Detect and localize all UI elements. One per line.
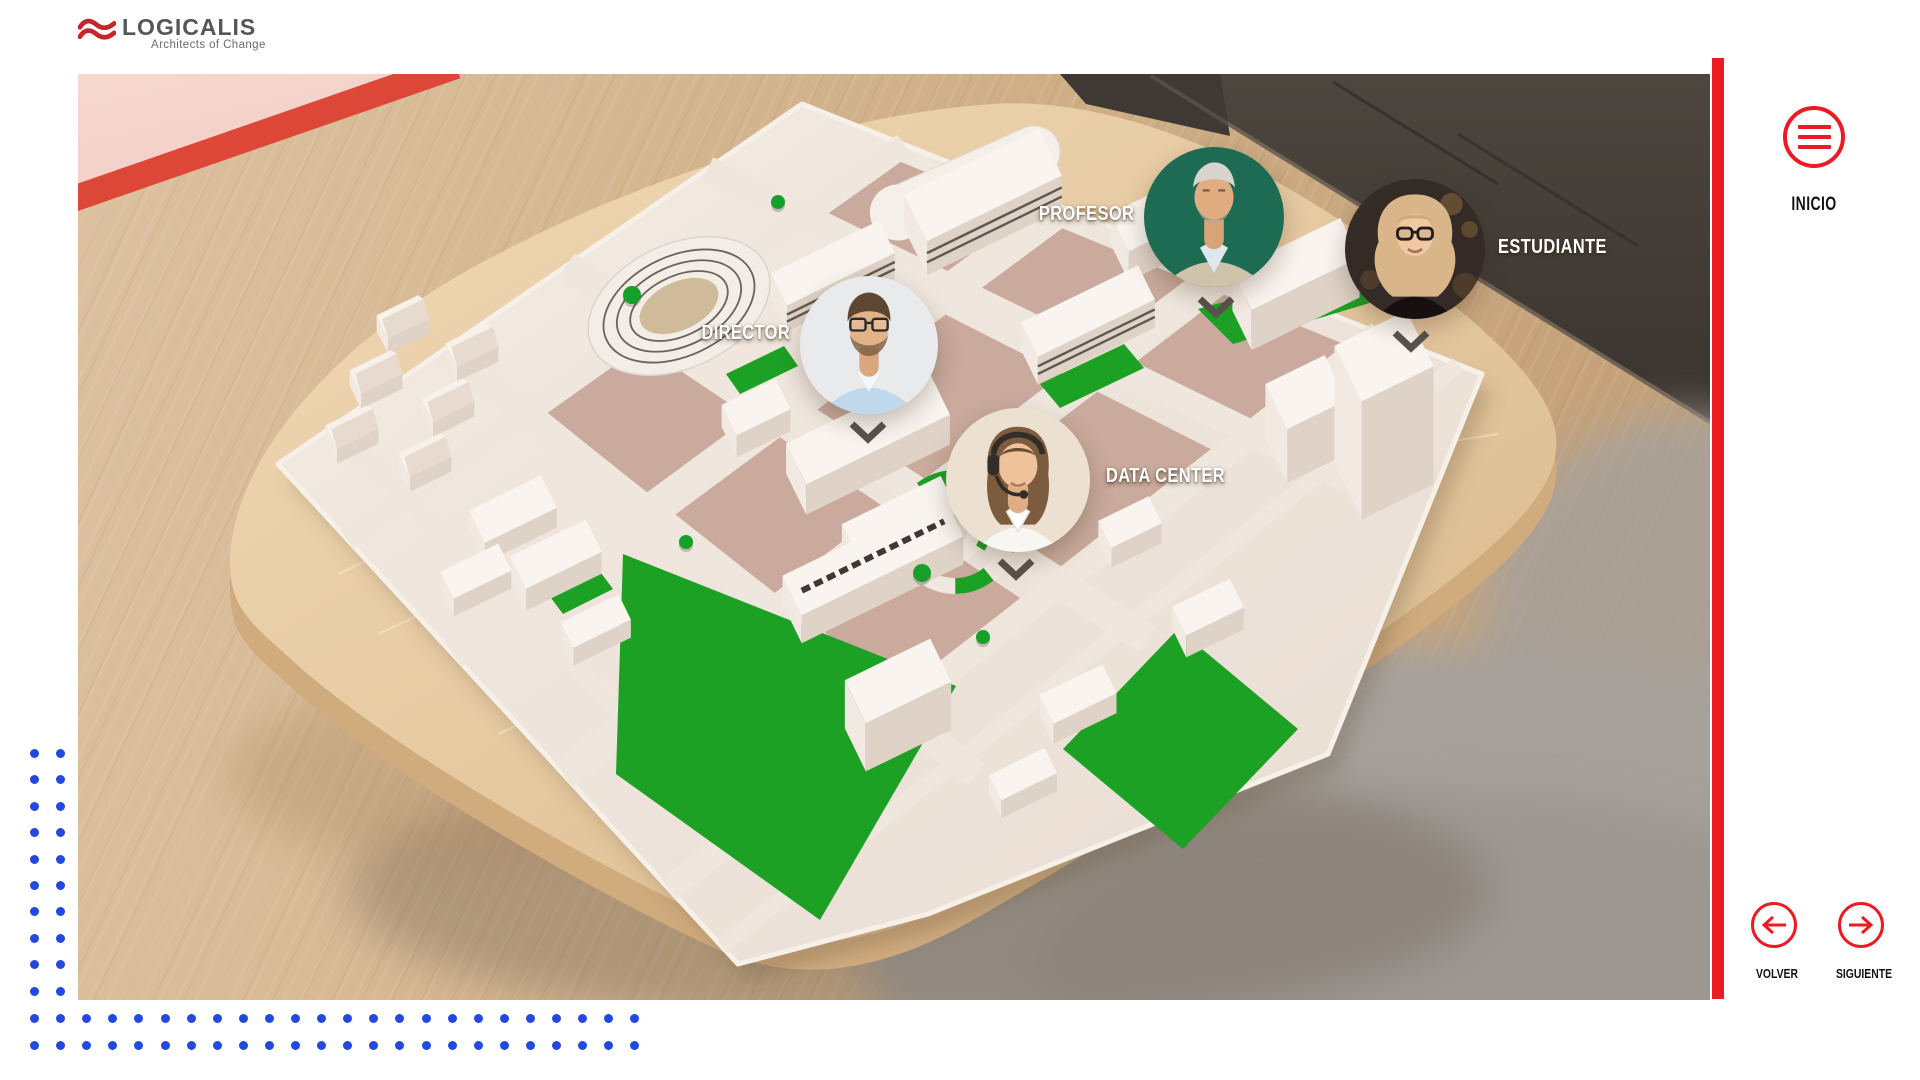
chevron-down-icon <box>849 420 887 446</box>
brand-tagline: Architects of Change <box>151 39 266 51</box>
app-window: LOGICALIS Architects of Change <box>0 0 1920 1080</box>
data-center-avatar[interactable] <box>946 408 1090 552</box>
chevron-down-icon <box>997 557 1035 583</box>
next-button[interactable] <box>1838 902 1884 948</box>
hotspot-label-profesor: PROFESOR <box>1039 203 1134 226</box>
home-label: INICIO <box>1788 194 1840 216</box>
estudiante-avatar[interactable] <box>1345 179 1485 319</box>
logicalis-logo: LOGICALIS Architects of Change <box>78 16 266 51</box>
arrow-left-icon <box>1759 913 1789 937</box>
chevron-down-icon <box>1197 295 1235 321</box>
menu-button[interactable] <box>1783 106 1845 168</box>
hamburger-icon <box>1798 125 1831 129</box>
hotspot-label-estudiante: ESTUDIANTE <box>1498 236 1607 259</box>
brand-name: LOGICALIS <box>122 16 266 38</box>
next-label: SIGUIENTE <box>1824 966 1904 981</box>
arrow-right-icon <box>1846 913 1876 937</box>
hotspot-label-data-center: DATA CENTER <box>1106 465 1225 488</box>
profesor-avatar[interactable] <box>1144 147 1284 287</box>
back-button[interactable] <box>1751 902 1797 948</box>
director-avatar[interactable] <box>800 276 938 414</box>
back-label: VOLVER <box>1737 966 1817 981</box>
chevron-down-icon <box>1392 329 1430 355</box>
logicalis-wave-icon <box>78 16 116 46</box>
hotspot-label-director: DIRECTOR <box>701 322 790 345</box>
divider-red-line <box>1712 58 1724 999</box>
